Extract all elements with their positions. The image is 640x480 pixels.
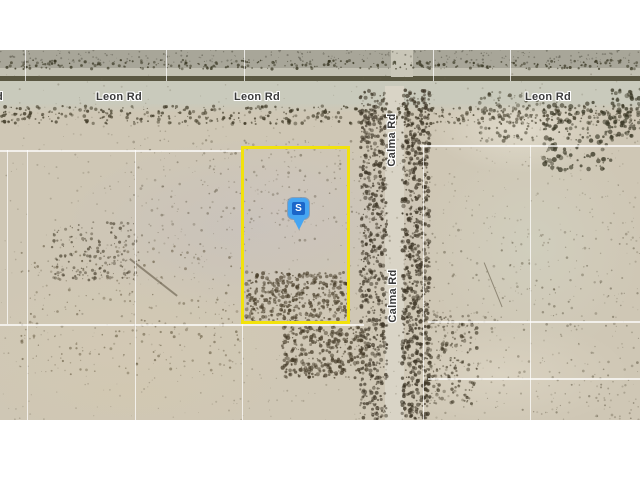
parcel-grid-line [135, 150, 136, 420]
marker-head: S [288, 198, 309, 219]
dirt-track-mark [130, 258, 178, 296]
parcel-grid-line [428, 378, 640, 380]
map-marker[interactable]: S [288, 198, 309, 231]
terrain-patch [0, 348, 280, 420]
screenshot-stage: Leon Rd Leon Rd Leon Rd Leon Rd Calma Rd… [0, 0, 640, 480]
terrain-north-strip [0, 50, 640, 68]
parcel-grid-line [242, 324, 243, 420]
terrain-patch [370, 318, 630, 420]
marker-tail-icon [293, 218, 305, 230]
terrain-patch [425, 130, 640, 360]
parcel-grid-line [420, 145, 640, 147]
parcel-grid-line [27, 150, 28, 420]
leon-road-surface [0, 81, 640, 104]
satellite-map[interactable]: Leon Rd Leon Rd Leon Rd Leon Rd Calma Rd… [0, 50, 640, 420]
parcel-grid-line [530, 145, 531, 420]
parcel-grid-line [423, 145, 424, 420]
marker-letter: S [292, 202, 305, 215]
top-white-margin [0, 0, 640, 50]
parcel-grid-line [0, 150, 244, 152]
calma-road-north-stub [391, 50, 413, 77]
parcel-boundary-highlight [241, 146, 350, 324]
dirt-track-mark [483, 262, 502, 307]
parcel-grid-line [7, 150, 8, 324]
road-shoulder-south [0, 104, 640, 113]
parcel-grid-line [428, 321, 640, 323]
bottom-white-margin [0, 420, 640, 480]
parcel-grid-line [0, 324, 364, 326]
calma-road-surface [385, 86, 404, 420]
road-shoulder-north [0, 68, 640, 76]
